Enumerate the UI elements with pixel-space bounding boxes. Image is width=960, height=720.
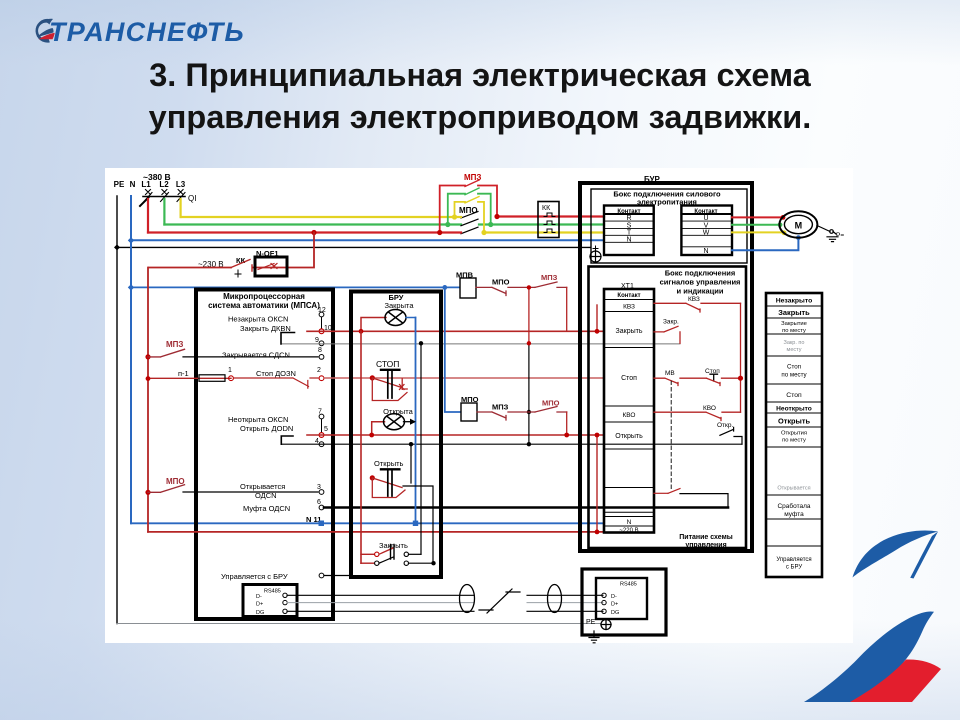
svg-text:Контакт: Контакт bbox=[617, 293, 640, 299]
svg-text:Закрыта: Закрыта bbox=[384, 301, 414, 310]
svg-text:N: N bbox=[627, 519, 632, 526]
svg-text:М: М bbox=[795, 221, 803, 231]
svg-text:D-: D- bbox=[611, 594, 617, 600]
svg-text:Открыть: Открыть bbox=[778, 417, 811, 426]
svg-text:N: N bbox=[626, 236, 631, 243]
svg-text:КВЗ: КВЗ bbox=[623, 304, 635, 311]
svg-text:D+: D+ bbox=[256, 602, 263, 608]
svg-text:DG: DG bbox=[256, 610, 264, 616]
svg-text:T: T bbox=[627, 229, 632, 236]
svg-text:W: W bbox=[703, 229, 710, 236]
svg-text:Незакрыта ОКСN: Незакрыта ОКСN bbox=[228, 315, 288, 324]
svg-text:N: N bbox=[130, 180, 136, 189]
svg-text:Неоткрыто: Неоткрыто bbox=[776, 406, 812, 413]
svg-text:7: 7 bbox=[318, 409, 322, 416]
svg-text:S: S bbox=[627, 222, 632, 229]
svg-text:Открытия: Открытия bbox=[781, 431, 807, 437]
svg-text:D-: D- bbox=[256, 594, 262, 600]
svg-text:КК: КК bbox=[542, 205, 551, 212]
svg-text:Микропроцессорная: Микропроцессорная bbox=[223, 292, 305, 301]
svg-text:5: 5 bbox=[324, 426, 328, 433]
svg-text:Закрыть: Закрыть bbox=[616, 328, 643, 335]
svg-text:МПО: МПО bbox=[459, 206, 478, 215]
svg-text:RS485: RS485 bbox=[264, 589, 281, 595]
svg-text:Откр.: Откр. bbox=[717, 422, 733, 429]
svg-text:Питание схемы: Питание схемы bbox=[679, 534, 733, 541]
svg-text:Закрыть ДКВN: Закрыть ДКВN bbox=[240, 324, 291, 333]
svg-text:КВО: КВО bbox=[703, 405, 716, 412]
svg-text:Закрывается СДСN: Закрывается СДСN bbox=[222, 351, 290, 360]
svg-text:PE: PE bbox=[114, 180, 125, 189]
svg-text:Закрыть: Закрыть bbox=[778, 308, 810, 317]
svg-text:Контакт: Контакт bbox=[694, 209, 717, 215]
svg-text:12: 12 bbox=[318, 307, 326, 314]
svg-text:с БРУ: с БРУ bbox=[786, 565, 802, 571]
svg-text:РЕ: РЕ bbox=[586, 619, 596, 626]
svg-text:Закр.: Закр. bbox=[663, 319, 679, 326]
svg-text:МВ: МВ bbox=[665, 370, 675, 377]
svg-text:DG: DG bbox=[611, 610, 619, 616]
svg-text:L3: L3 bbox=[176, 180, 186, 189]
svg-text:п-1: п-1 bbox=[178, 369, 189, 378]
svg-text:QI: QI bbox=[188, 194, 196, 203]
svg-text:3: 3 bbox=[317, 484, 321, 491]
svg-text:Управляется: Управляется bbox=[776, 557, 811, 563]
svg-text:Бокс подключения: Бокс подключения bbox=[665, 269, 735, 278]
svg-text:Неоткрыта ОКСN: Неоткрыта ОКСN bbox=[228, 415, 288, 424]
svg-text:МПЗ: МПЗ bbox=[541, 273, 558, 282]
svg-text:сигналов управления: сигналов управления bbox=[660, 278, 741, 287]
svg-text:СТОП: СТОП bbox=[376, 359, 399, 369]
svg-text:R: R bbox=[626, 215, 631, 222]
svg-text:ОДСN: ОДСN bbox=[255, 491, 277, 500]
svg-text:МПО: МПО bbox=[492, 278, 510, 287]
svg-text:RS485: RS485 bbox=[620, 582, 637, 588]
svg-text:Открыть ДОDN: Открыть ДОDN bbox=[240, 424, 293, 433]
svg-text:БУР: БУР bbox=[644, 175, 661, 184]
svg-text:Муфта ОДСN: Муфта ОДСN bbox=[243, 504, 290, 513]
svg-text:Стоп: Стоп bbox=[621, 375, 637, 382]
svg-text:Сработала: Сработала bbox=[777, 502, 810, 510]
svg-text:и индикации: и индикации bbox=[677, 287, 724, 296]
svg-text:месту: месту bbox=[787, 347, 802, 353]
svg-text:N: N bbox=[703, 248, 708, 255]
svg-text:по месту: по месту bbox=[782, 328, 806, 334]
svg-text:управления: управления bbox=[685, 542, 726, 549]
svg-text:МПО: МПО bbox=[166, 477, 185, 486]
svg-text:Р=: Р= bbox=[836, 232, 844, 239]
svg-text:Закрытие: Закрытие bbox=[781, 321, 807, 327]
svg-text:МПЗ: МПЗ bbox=[492, 403, 509, 412]
svg-text:КВЗ: КВЗ bbox=[688, 296, 700, 303]
svg-text:МПЗ: МПЗ bbox=[166, 340, 183, 349]
svg-text:муфта: муфта bbox=[784, 511, 804, 518]
svg-text:2: 2 bbox=[317, 367, 321, 374]
svg-text:D+: D+ bbox=[611, 602, 618, 608]
svg-text:V: V bbox=[704, 222, 709, 229]
svg-text:Контакт: Контакт bbox=[617, 209, 640, 215]
svg-text:Закр. по: Закр. по bbox=[784, 340, 805, 346]
svg-text:Открыть: Открыть bbox=[615, 433, 643, 440]
svg-text:Открывается: Открывается bbox=[240, 482, 285, 491]
svg-text:U: U bbox=[703, 215, 708, 222]
svg-text:по месту: по месту bbox=[782, 438, 806, 444]
svg-text:по месту: по месту bbox=[781, 372, 807, 379]
svg-text:Открывается: Открывается bbox=[777, 486, 810, 492]
svg-text:Стоп: Стоп bbox=[786, 392, 802, 399]
svg-text:8: 8 bbox=[318, 347, 322, 354]
svg-text:Управляется с БРУ: Управляется с БРУ bbox=[221, 572, 288, 581]
svg-text:КВО: КВО bbox=[623, 412, 636, 419]
svg-text:Стоп: Стоп bbox=[787, 364, 801, 371]
svg-text:система автоматики (МПСА): система автоматики (МПСА) bbox=[208, 301, 320, 310]
svg-text:9: 9 bbox=[315, 337, 319, 344]
svg-text:L2: L2 bbox=[159, 180, 169, 189]
svg-text:6: 6 bbox=[317, 499, 321, 506]
svg-text:Стоп ДОЗN: Стоп ДОЗN bbox=[256, 369, 296, 378]
svg-text:Открыть: Открыть bbox=[374, 459, 404, 468]
svg-text:~220 В: ~220 В bbox=[619, 528, 638, 534]
svg-text:L1: L1 bbox=[141, 180, 151, 189]
svg-text:1: 1 bbox=[228, 367, 232, 374]
svg-text:Незакрыто: Незакрыто bbox=[776, 298, 813, 305]
